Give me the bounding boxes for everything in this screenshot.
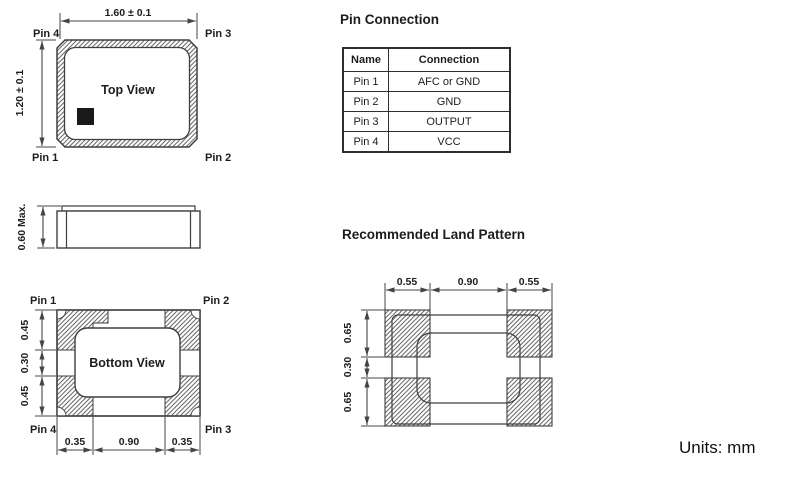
side-view-height-dim: 0.60 Max.	[16, 204, 28, 251]
side-view-drawing: 0.60 Max.	[0, 192, 230, 258]
land-pattern-title: Recommended Land Pattern	[342, 227, 525, 242]
pin-label-4: Pin 4	[33, 28, 60, 40]
side-lid	[62, 206, 195, 211]
pin1-marker	[77, 108, 94, 125]
datasheet-drawing-page: 1.60 ± 0.1 1.20 ± 0.1 Top View Pin 4 Pin…	[0, 0, 790, 487]
top-view-height-dim: 1.20 ± 0.1	[14, 70, 26, 117]
pin-label-4: Pin 4	[30, 424, 57, 436]
cell-pin-name: Pin 4	[343, 132, 389, 153]
land-dim-055-left: 0.55	[397, 276, 418, 288]
component-pad-outline-overlay	[417, 333, 520, 403]
cell-pin-name: Pin 1	[343, 72, 389, 92]
land-dim-065-bottom: 0.65	[342, 392, 354, 413]
bottom-dim-030: 0.30	[19, 353, 31, 374]
land-pad-top-right	[507, 310, 552, 357]
cell-pin-name: Pin 3	[343, 112, 389, 132]
bottom-dim-035-left: 0.35	[65, 436, 86, 448]
bottom-dim-045-top: 0.45	[19, 320, 31, 341]
units-label: Units: mm	[679, 438, 756, 458]
cell-pin-connection: OUTPUT	[389, 112, 511, 132]
bottom-dim-090: 0.90	[119, 436, 140, 448]
header-connection: Connection	[389, 48, 511, 72]
cell-pin-name: Pin 2	[343, 92, 389, 112]
pin-connection-title: Pin Connection	[340, 12, 439, 27]
top-view-width-dim: 1.60 ± 0.1	[105, 7, 152, 19]
bottom-dim-045-bottom: 0.45	[19, 386, 31, 407]
top-view-label: Top View	[101, 83, 155, 97]
bottom-view-drawing: Pin 1 Pin 2 Bottom View 0.45 0.30 0.45 P…	[0, 290, 270, 470]
bottom-view-label: Bottom View	[89, 356, 165, 370]
pin-label-1: Pin 1	[32, 152, 58, 164]
land-dim-090: 0.90	[458, 276, 479, 288]
pin-connection-table: Name Connection Pin 1 AFC or GND Pin 2 G…	[342, 47, 511, 153]
cell-pin-connection: GND	[389, 92, 511, 112]
pin-label-3: Pin 3	[205, 424, 231, 436]
cell-pin-connection: AFC or GND	[389, 72, 511, 92]
table-row: Pin 1 AFC or GND	[343, 72, 510, 92]
land-pattern-drawing: 0.55 0.90 0.55 0.65 0.30 0.65	[330, 252, 590, 442]
table-header-row: Name Connection	[343, 48, 510, 72]
bottom-dim-035-right: 0.35	[172, 436, 193, 448]
side-body	[57, 211, 200, 248]
land-dim-065-top: 0.65	[342, 323, 354, 344]
land-pad-bottom-right	[507, 378, 552, 426]
pin-label-3: Pin 3	[205, 28, 231, 40]
table-row: Pin 3 OUTPUT	[343, 112, 510, 132]
table-row: Pin 2 GND	[343, 92, 510, 112]
top-view-drawing: 1.60 ± 0.1 1.20 ± 0.1 Top View Pin 4 Pin…	[0, 0, 250, 175]
pin-label-1: Pin 1	[30, 295, 56, 307]
table-row: Pin 4 VCC	[343, 132, 510, 153]
pin-label-2: Pin 2	[205, 152, 231, 164]
pin-label-2: Pin 2	[203, 295, 229, 307]
header-name: Name	[343, 48, 389, 72]
land-dim-030: 0.30	[342, 357, 354, 378]
land-dim-055-right: 0.55	[519, 276, 540, 288]
cell-pin-connection: VCC	[389, 132, 511, 153]
